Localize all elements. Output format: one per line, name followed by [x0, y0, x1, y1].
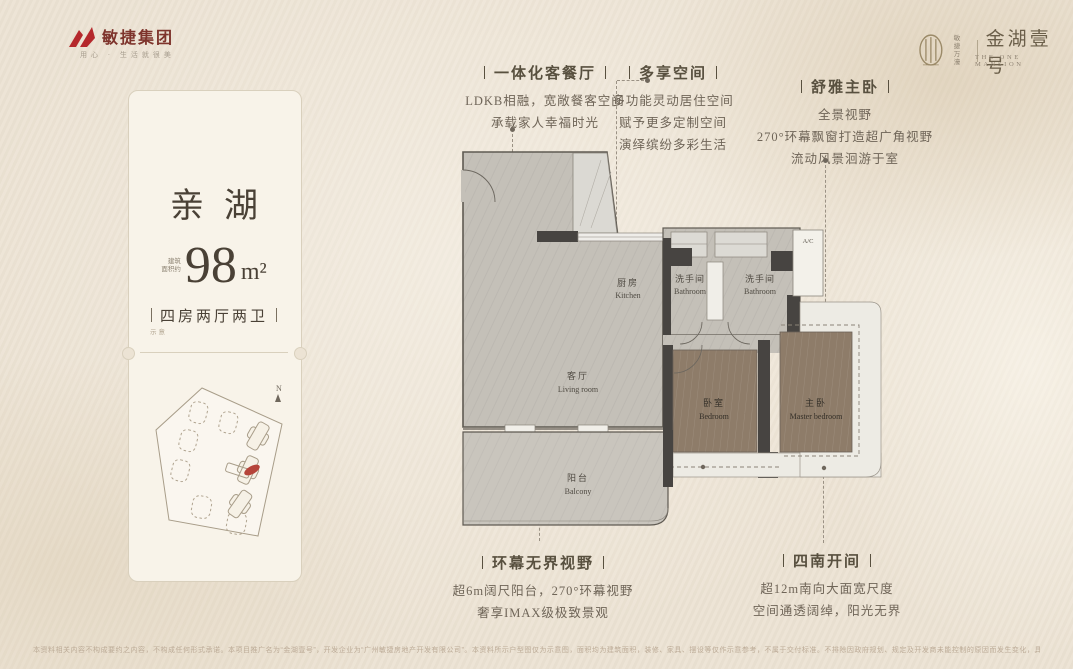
developer-slogan: 用心 · 生活就很美: [80, 50, 175, 60]
area-prefix: 建筑 面积约: [161, 258, 181, 274]
balcony-label-cn: 阳台: [567, 472, 589, 483]
bathroom-window: [715, 232, 767, 257]
project-name-en: THE ONE MANSION: [975, 54, 1073, 68]
ac-label: A/C: [803, 238, 814, 245]
site-plan-diagram: N: [152, 378, 292, 553]
card-divider: [140, 352, 288, 353]
bedroom-label-en: Bedroom: [699, 412, 730, 421]
master-label-en: Master bedroom: [790, 412, 843, 421]
annotation-line: 奢享IMAX级极致景观: [430, 602, 656, 624]
living-label-cn: 客厅: [567, 370, 589, 381]
developer-name: 敏捷集团: [102, 24, 174, 48]
master-label-cn: 主卧: [805, 397, 827, 408]
bathroom2-label-en: Bathroom: [744, 287, 777, 296]
legal-disclaimer: 本资料相关内容不构成要约之内容，不构成任何形式承诺。本项目推广名为“金湖壹号”，…: [33, 645, 1040, 655]
tag-line-2: 万濠: [954, 51, 969, 67]
project-emblem-icon: [916, 33, 946, 69]
leader-dot: [645, 78, 650, 83]
wall-block: [537, 231, 578, 242]
annotation-line: 超6m阔尺阳台，270°环幕视野: [430, 580, 656, 602]
project-logo: 敏捷 万濠 金湖壹号: [916, 24, 1073, 78]
leader-dot: [510, 127, 515, 132]
bathroom1-label-cn: 洗手间: [675, 273, 705, 284]
area-prefix-line1: 建筑: [161, 258, 181, 266]
entry-closet: [573, 153, 617, 233]
agile-swoosh-icon: [68, 26, 98, 48]
annotation-title: 四南开间: [714, 550, 940, 571]
north-label: N: [276, 384, 282, 393]
north-arrow-icon: [275, 394, 281, 402]
master-bedroom-floor: [780, 332, 852, 452]
area-prefix-line2: 面积约: [161, 266, 181, 274]
unit-title: 亲湖: [128, 178, 300, 227]
annotation-line: 超12m南向大面宽尺度: [714, 578, 940, 600]
annotation-line: 空间通透阔绰，阳光无界: [714, 600, 940, 622]
annotation-title: 环幕无界视野: [430, 552, 656, 573]
tag-line-1: 敏捷: [954, 35, 969, 51]
card-notch-right: [294, 347, 307, 360]
kitchen-label-en: Kitchen: [615, 291, 640, 300]
unit-layout: 四房两厅两卫: [128, 305, 300, 326]
unit-layout-note: 示意: [150, 326, 167, 336]
floor-plan: A/C 厨房 Kitchen 洗手间 Bathroom 洗手间 Bathro: [450, 140, 890, 545]
bedroom-label-cn: 卧室: [703, 397, 725, 408]
developer-logo: 敏捷集团: [68, 24, 174, 48]
annotation-balcony-view: 环幕无界视野 超6m阔尺阳台，270°环幕视野 奢享IMAX级极致景观: [430, 552, 656, 624]
area-unit: m²: [241, 259, 267, 292]
wall-block: [663, 430, 673, 487]
area-value: 98: [185, 240, 237, 292]
leader-line: [617, 80, 644, 81]
annotation-line: 全景视野: [732, 104, 958, 126]
sliding-door-panel: [505, 425, 535, 432]
balcony-floor: [463, 432, 668, 525]
poster-canvas: 敏捷集团 用心 · 生活就很美 敏捷 万濠 金湖壹号 THE ONE MANSI…: [0, 0, 1073, 669]
bathroom2-label-cn: 洗手间: [745, 273, 775, 284]
kitchen-label-cn: 厨房: [617, 277, 639, 288]
pipe-shaft: [707, 262, 723, 320]
living-label-en: Living room: [558, 385, 599, 394]
annotation-title: 舒雅主卧: [732, 76, 958, 97]
project-tagchars: 敏捷 万濠: [954, 35, 969, 67]
project-name: 金湖壹号: [986, 24, 1073, 78]
bathroom1-label-en: Bathroom: [674, 287, 707, 296]
annotation-south-bays: 四南开间 超12m南向大面宽尺度 空间通透阔绰，阳光无界: [714, 550, 940, 622]
unit-area: 建筑 面积约 98 m²: [128, 240, 300, 292]
card-notch-left: [122, 347, 135, 360]
balcony-label-en: Balcony: [565, 487, 592, 496]
sliding-door-panel: [578, 425, 608, 432]
